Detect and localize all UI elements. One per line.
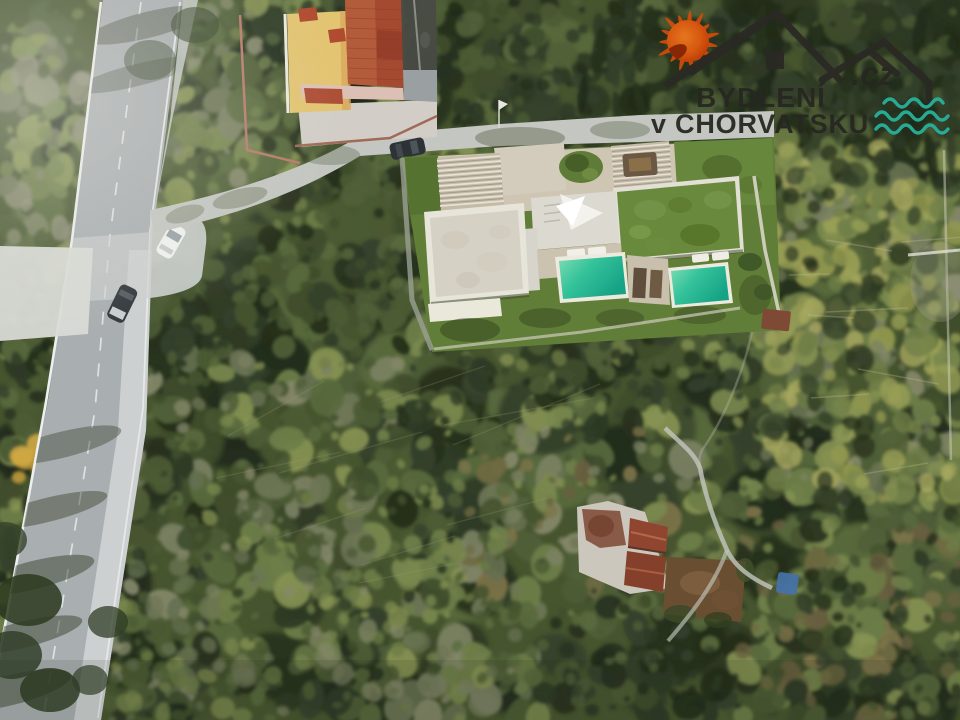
svg-text:.cz: .cz [851, 55, 896, 92]
svg-text:v CHORVATSKU: v CHORVATSKU [651, 109, 869, 139]
